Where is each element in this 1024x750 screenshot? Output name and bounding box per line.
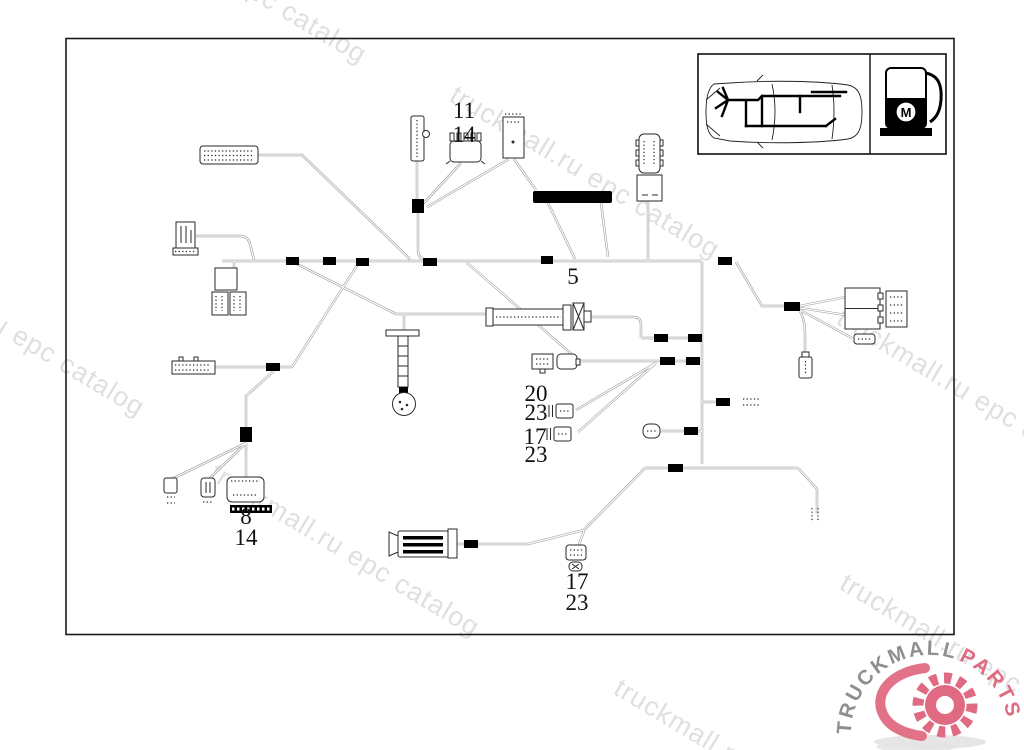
callout-11: 11 <box>453 98 475 123</box>
callout-5: 5 <box>567 264 579 289</box>
multi-pin-connector-top-left <box>200 146 258 164</box>
bracket-connector-left <box>173 222 198 255</box>
grommet-probe <box>386 330 419 416</box>
callout-23: 23 <box>525 442 548 467</box>
callout-14: 14 <box>453 122 477 147</box>
connector-17-23-bottom <box>566 545 586 571</box>
callout-14: 14 <box>235 525 259 550</box>
tall-connector-top-right <box>636 134 663 201</box>
inset-panel: M <box>698 54 946 154</box>
callout-23: 23 <box>525 400 548 425</box>
comb-connector-left <box>172 357 215 374</box>
harness-wiring <box>172 155 852 547</box>
harness-junction-bar <box>533 191 612 203</box>
gear-icon <box>880 668 972 736</box>
connector-20-23 <box>549 404 573 418</box>
relay-box-top <box>503 114 524 158</box>
watermark-text: truckmall.ru epc catalog <box>92 0 372 69</box>
connector-pair-mid <box>532 354 580 373</box>
epc-catalog-page: { "watermark": { "text": "truckmall.ru e… <box>0 0 1024 750</box>
motor-letter: M <box>901 105 912 120</box>
watermark-text: truckmall.ru epc catalog <box>832 302 1024 487</box>
callout-23: 23 <box>566 590 589 615</box>
connector-17-23-mid <box>547 427 571 441</box>
antenna-connector <box>411 116 430 161</box>
junction-box-left <box>212 268 246 315</box>
round-connector-right-mid <box>643 424 660 438</box>
comb-connector-bottom <box>389 529 457 558</box>
parts-diagram-canvas: truckmall.ru epc catalog truckmall.ru ep… <box>0 0 1024 750</box>
watermark-text: truckmall.ru epc catalog <box>0 237 150 422</box>
stub-terminal <box>743 399 760 405</box>
